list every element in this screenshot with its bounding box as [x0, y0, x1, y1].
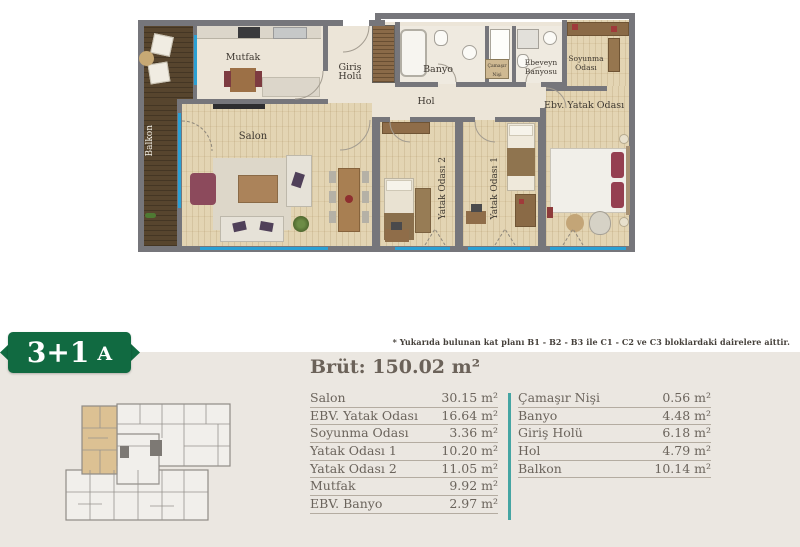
area-name: Banyo	[518, 408, 557, 423]
dining-chair-2	[329, 191, 336, 203]
kitchen-peninsula	[262, 77, 320, 97]
area-name: EBV. Banyo	[310, 496, 382, 511]
area-row-giris-holu: Giriş Holü6.18 m²	[518, 425, 711, 443]
area-name: Mutfak	[310, 478, 356, 493]
dining-chair-5	[362, 191, 369, 203]
area-value: 2.97 m²	[449, 496, 498, 511]
label-ebv-yatak-odasi: Ebv. Yatak Odası	[544, 100, 624, 111]
area-name: Salon	[310, 390, 346, 405]
kitchen-chair-1	[224, 71, 231, 87]
wall-yatak1-master	[538, 120, 546, 246]
wall-nis-ebeveyn	[512, 26, 516, 82]
area-value: 16.64 m²	[441, 408, 498, 423]
yatak1-pillow	[509, 125, 533, 136]
yatak2-blanket	[415, 188, 431, 233]
dining-chair-3	[329, 211, 336, 223]
disclaimer-note: * Yukarıda bulunan kat planı B1 - B2 - B…	[393, 337, 790, 347]
dining-chair-1	[329, 171, 336, 183]
wall-top-step	[375, 13, 381, 26]
wall-top-right	[375, 13, 635, 19]
salon-plant	[293, 216, 309, 232]
area-name: Yatak Odası 1	[310, 443, 397, 458]
table-divider	[508, 393, 511, 520]
master-headboard	[626, 146, 630, 215]
ebeveyn-shower	[517, 29, 539, 49]
area-value: 4.79 m²	[662, 443, 711, 458]
service-shaft	[372, 25, 395, 83]
wall-right	[629, 13, 635, 252]
master-lamp-1	[619, 134, 629, 144]
area-row-banyo: Banyo4.48 m²	[518, 408, 711, 426]
area-value: 0.56 m²	[662, 390, 711, 405]
area-row-soyunma: Soyunma Odası3.36 m²	[310, 425, 498, 443]
label-banyo: Banyo	[418, 65, 458, 74]
salon-armchair	[190, 173, 216, 205]
entrance-door-gap	[343, 20, 369, 26]
area-name: EBV. Yatak Odası	[310, 408, 418, 423]
yatak2-chair	[391, 222, 402, 230]
label-balkon: Balkon	[145, 125, 155, 157]
master-pillow-2	[611, 182, 624, 208]
window-yatak2	[395, 247, 450, 250]
master-pouf	[566, 214, 584, 232]
wall-soyunma-master	[546, 86, 607, 91]
floor-plan-page: Balkon Mutfak Giriş Holü Banyo Çamaşır N…	[0, 0, 800, 547]
area-name: Balkon	[518, 461, 562, 476]
badge-size-label: 3+1	[27, 339, 89, 367]
yatak1-chair	[471, 204, 482, 212]
area-row-camasir: Çamaşır Nişi0.56 m²	[518, 390, 711, 408]
area-name: Soyunma Odası	[310, 425, 409, 440]
apartment-type-badge: 3+1 A	[0, 331, 142, 374]
wall-yatak2-yatak1	[455, 120, 463, 246]
area-row-mutfak: Mutfak9.92 m²	[310, 478, 498, 496]
yatak2-shelf	[382, 122, 430, 134]
yatak2-desk	[385, 229, 409, 242]
balkon-plant	[145, 213, 156, 218]
label-ebeveyn-banyosu: Ebeveyn Banyosu	[518, 58, 564, 76]
master-chair	[589, 211, 611, 235]
soyunma-wardrobe-right	[608, 38, 620, 72]
window-salon	[200, 247, 328, 250]
label-hol: Hol	[414, 97, 438, 106]
label-yatak-odasi-1: Yatak Odası 1	[490, 157, 500, 220]
soyunma-item-2	[611, 26, 617, 32]
badge-body: 3+1 A	[8, 332, 131, 373]
label-giris-holu: Giriş Holü	[326, 63, 374, 81]
area-value: 9.92 m²	[449, 478, 498, 493]
label-yatak-odasi-2: Yatak Odası 2	[438, 157, 448, 220]
area-row-ebv-yatak: EBV. Yatak Odası16.64 m²	[310, 408, 498, 426]
area-row-yatak1: Yatak Odası 110.20 m²	[310, 443, 498, 461]
kitchen-stove	[238, 27, 260, 38]
yatak1-quilt	[507, 148, 535, 176]
badge-block-label: A	[97, 341, 112, 364]
salon-coffee-table	[238, 175, 278, 203]
salon-sofa-bottom	[220, 216, 284, 242]
label-salon: Salon	[230, 132, 276, 141]
soyunma-item-1	[572, 24, 578, 30]
area-row-yatak2: Yatak Odası 211.05 m²	[310, 461, 498, 479]
yatak1-desk	[466, 211, 486, 224]
area-value: 4.48 m²	[662, 408, 711, 423]
label-camasir-nisi: Çamaşır Nişi	[485, 59, 509, 79]
badge-ribbon-right	[131, 344, 140, 361]
master-accent	[547, 207, 553, 218]
balkon-lounge-chair-2	[148, 62, 171, 85]
area-row-salon: Salon30.15 m²	[310, 390, 498, 408]
window-mutfak	[194, 35, 197, 85]
kitchen-table	[230, 68, 256, 92]
kitchen-chair-2	[255, 71, 262, 87]
area-value: 30.15 m²	[441, 390, 498, 405]
area-name: Hol	[518, 443, 540, 458]
dining-chair-4	[362, 171, 369, 183]
window-master	[550, 247, 626, 250]
area-value: 3.36 m²	[449, 425, 498, 440]
wall-banyo-hol-b	[456, 82, 526, 87]
area-table-left: Salon30.15 m² EBV. Yatak Odası16.64 m² S…	[310, 390, 498, 514]
camasir-niche	[490, 29, 510, 60]
dining-centerpiece	[345, 195, 353, 203]
gross-area-title: Brüt: 150.02 m²	[310, 356, 480, 378]
salon-tv-unit	[213, 104, 265, 109]
area-name: Giriş Holü	[518, 425, 583, 440]
banyo-sink	[462, 45, 477, 60]
balkon-table	[139, 51, 154, 66]
yatak2-pillow	[386, 180, 412, 191]
wall-banyo-hol-a	[395, 82, 438, 87]
area-row-balkon: Balkon10.14 m²	[518, 461, 711, 479]
key-plan-thumbnail	[58, 394, 238, 530]
yatak1-item	[519, 199, 524, 204]
kitchen-sink	[273, 27, 307, 39]
apartment-floor-plan: Balkon Mutfak Giriş Holü Banyo Çamaşır N…	[138, 13, 638, 255]
area-table-right: Çamaşır Nişi0.56 m² Banyo4.48 m² Giriş H…	[518, 390, 711, 478]
area-name: Çamaşır Nişi	[518, 390, 600, 405]
label-mutfak: Mutfak	[220, 53, 266, 62]
area-value: 10.14 m²	[654, 461, 711, 476]
master-pillow-1	[611, 152, 624, 178]
room-balkon	[141, 101, 177, 246]
label-soyunma-odasi: Soyunma Odası	[566, 54, 606, 72]
wall-salon-yatak2	[372, 120, 380, 246]
window-yatak1	[468, 247, 530, 250]
ebeveyn-sink	[543, 31, 557, 45]
area-name: Yatak Odası 2	[310, 461, 397, 476]
balkon-lounge-chair-1	[150, 33, 174, 57]
master-lamp-2	[619, 217, 629, 227]
area-row-ebv-banyo: EBV. Banyo2.97 m²	[310, 496, 498, 514]
area-row-hol: Hol4.79 m²	[518, 443, 711, 461]
area-value: 6.18 m²	[662, 425, 711, 440]
window-salon-balkon	[178, 113, 181, 208]
area-value: 10.20 m²	[441, 443, 498, 458]
area-value: 11.05 m²	[441, 461, 498, 476]
dining-chair-6	[362, 211, 369, 223]
banyo-toilet	[434, 30, 448, 46]
